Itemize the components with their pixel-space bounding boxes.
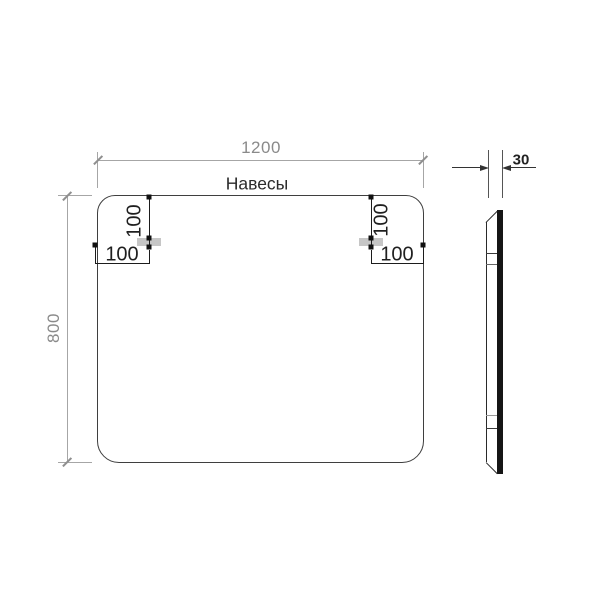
side-profile-bottom-bracket-line [486, 415, 497, 416]
drawing-canvas: Навесы 1200 800 100 100 100 100 30 [0, 0, 600, 600]
dim-hanger-side-left-ext2 [149, 250, 150, 264]
dim-width-line [98, 160, 423, 161]
dim-hanger-top-right-label: 100 [371, 203, 394, 236]
dim-height-ext-top [58, 195, 92, 196]
dim-hanger-side-left-label: 100 [105, 244, 138, 267]
dim-depth-ext-right [502, 150, 503, 198]
dim-depth-arrow-left-icon [502, 165, 511, 171]
dim-hanger-side-right-ext [423, 246, 424, 264]
dim-depth-label: 30 [513, 152, 530, 169]
side-profile-top-bracket-line2 [486, 264, 497, 265]
dim-endpoint-square [93, 243, 98, 248]
dim-hanger-side-right-ext2 [371, 250, 372, 264]
dim-hanger-side-left-ext [95, 246, 96, 264]
dim-height-label: 800 [44, 313, 64, 343]
dim-hanger-side-right-label: 100 [380, 244, 413, 267]
side-profile-top-bracket-line [486, 253, 497, 254]
side-profile-bottom-bracket-line2 [486, 428, 497, 429]
dim-depth-arrow-right-icon [480, 165, 489, 171]
side-profile-front-face [486, 222, 487, 462]
dim-depth-line-left [452, 167, 481, 168]
dim-height-line [67, 196, 68, 462]
dim-endpoint-square [369, 245, 374, 250]
hangers-label: Навесы [226, 174, 289, 195]
dim-width-label: 1200 [241, 138, 281, 158]
side-profile-bottom-chamfer [486, 462, 498, 474]
side-profile-back-bar [497, 210, 503, 474]
dim-depth-ext-left [488, 150, 489, 198]
dim-endpoint-square [147, 236, 152, 241]
dim-endpoint-square [421, 243, 426, 248]
dim-hanger-top-left-label: 100 [124, 204, 147, 237]
dim-endpoint-square [147, 195, 152, 200]
side-profile-top-chamfer [486, 211, 498, 223]
dim-endpoint-square [369, 195, 374, 200]
dim-endpoint-square [147, 245, 152, 250]
